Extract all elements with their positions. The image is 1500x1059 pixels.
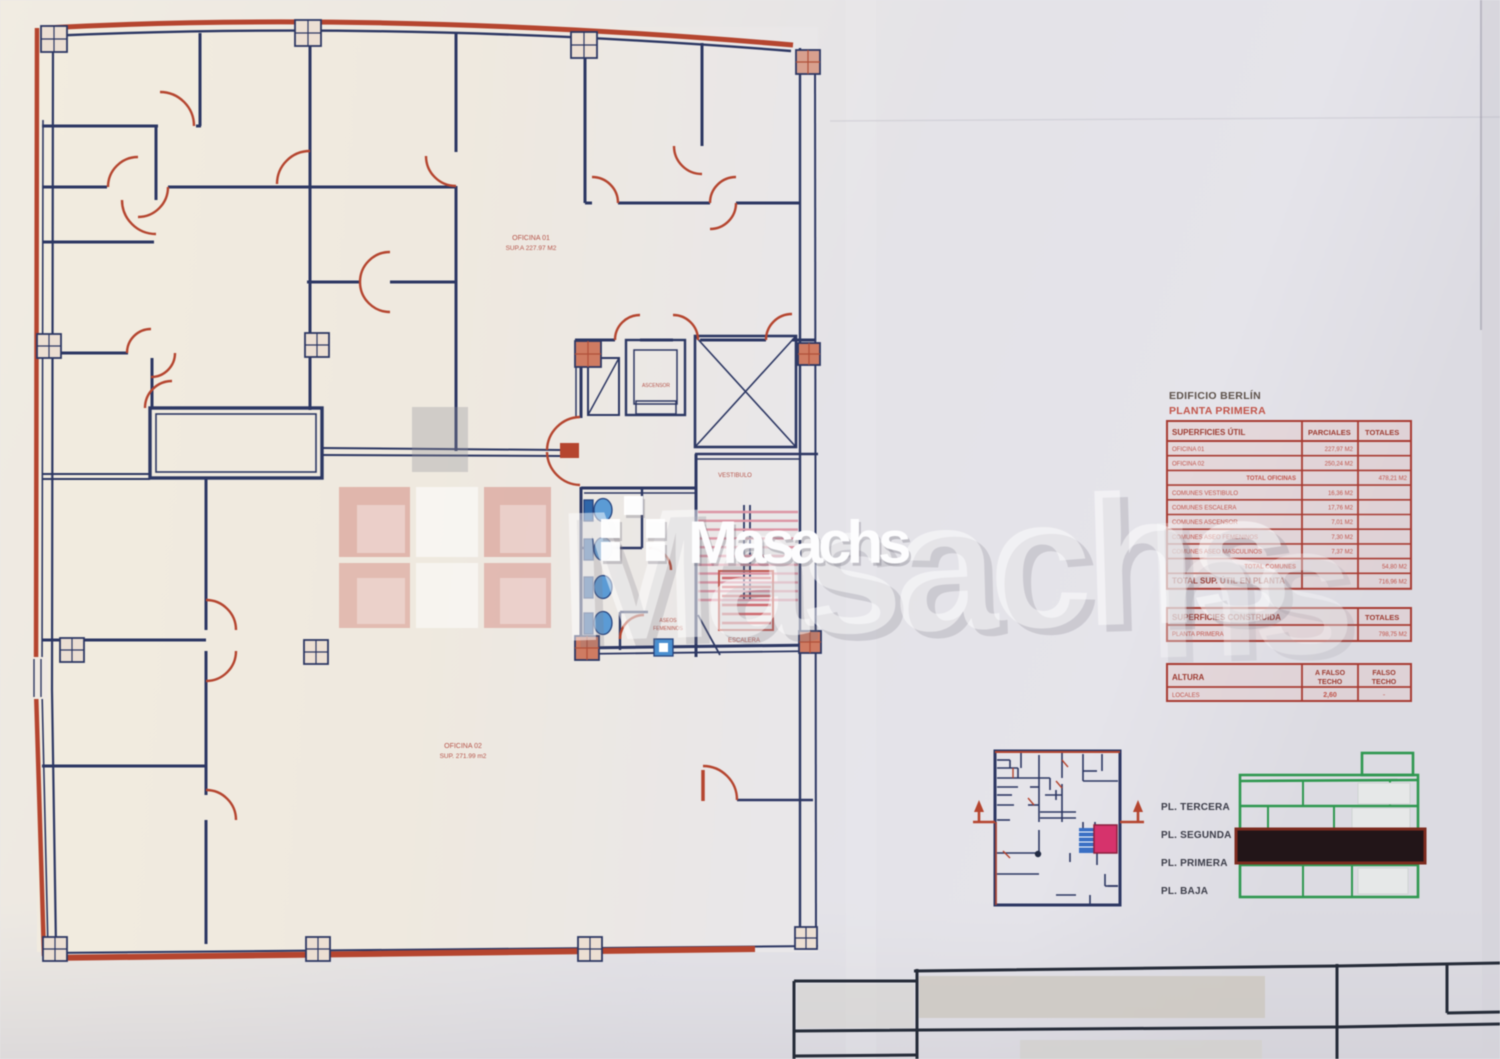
svg-text:Masachs: Masachs [688, 509, 909, 576]
svg-text:ASCENSOR: ASCENSOR [642, 383, 670, 389]
svg-text:250,24 M2: 250,24 M2 [1325, 461, 1354, 467]
svg-text:TECHO: TECHO [1372, 679, 1397, 686]
svg-text:SUPERFICIES ÚTIL: SUPERFICIES ÚTIL [1172, 428, 1245, 437]
svg-text:SUP. 271.99 m2: SUP. 271.99 m2 [440, 753, 487, 760]
svg-text:54,80 M2: 54,80 M2 [1382, 564, 1408, 570]
svg-text:PL. PRIMERA: PL. PRIMERA [1161, 858, 1228, 869]
svg-text:OFICINA 01: OFICINA 01 [512, 235, 550, 242]
svg-text:OFICINA 01: OFICINA 01 [1172, 447, 1205, 453]
svg-text:227,97 M2: 227,97 M2 [1325, 447, 1354, 453]
svg-text:478,21 M2: 478,21 M2 [1379, 476, 1408, 482]
svg-text:798,75 M2: 798,75 M2 [1379, 632, 1408, 638]
svg-text:SUP.A 227.97 M2: SUP.A 227.97 M2 [506, 245, 557, 252]
svg-text:TOTALES: TOTALES [1365, 428, 1399, 437]
svg-text:PL. BAJA: PL. BAJA [1161, 886, 1208, 897]
svg-text:FALSO: FALSO [1372, 670, 1396, 677]
svg-text:PARCIALES: PARCIALES [1308, 428, 1351, 437]
svg-text:hs: hs [1143, 486, 1350, 698]
svg-text:OFICINA 02: OFICINA 02 [444, 743, 482, 750]
svg-text:PL. SEGUNDA: PL. SEGUNDA [1161, 830, 1232, 841]
svg-text:EDIFICIO BERLÍN: EDIFICIO BERLÍN [1169, 389, 1261, 402]
svg-text:716,96 M2: 716,96 M2 [1379, 580, 1408, 586]
svg-text:TOTALES: TOTALES [1365, 613, 1399, 622]
svg-text:PL. TERCERA: PL. TERCERA [1161, 802, 1230, 813]
svg-text:PLANTA PRIMERA: PLANTA PRIMERA [1169, 405, 1266, 417]
